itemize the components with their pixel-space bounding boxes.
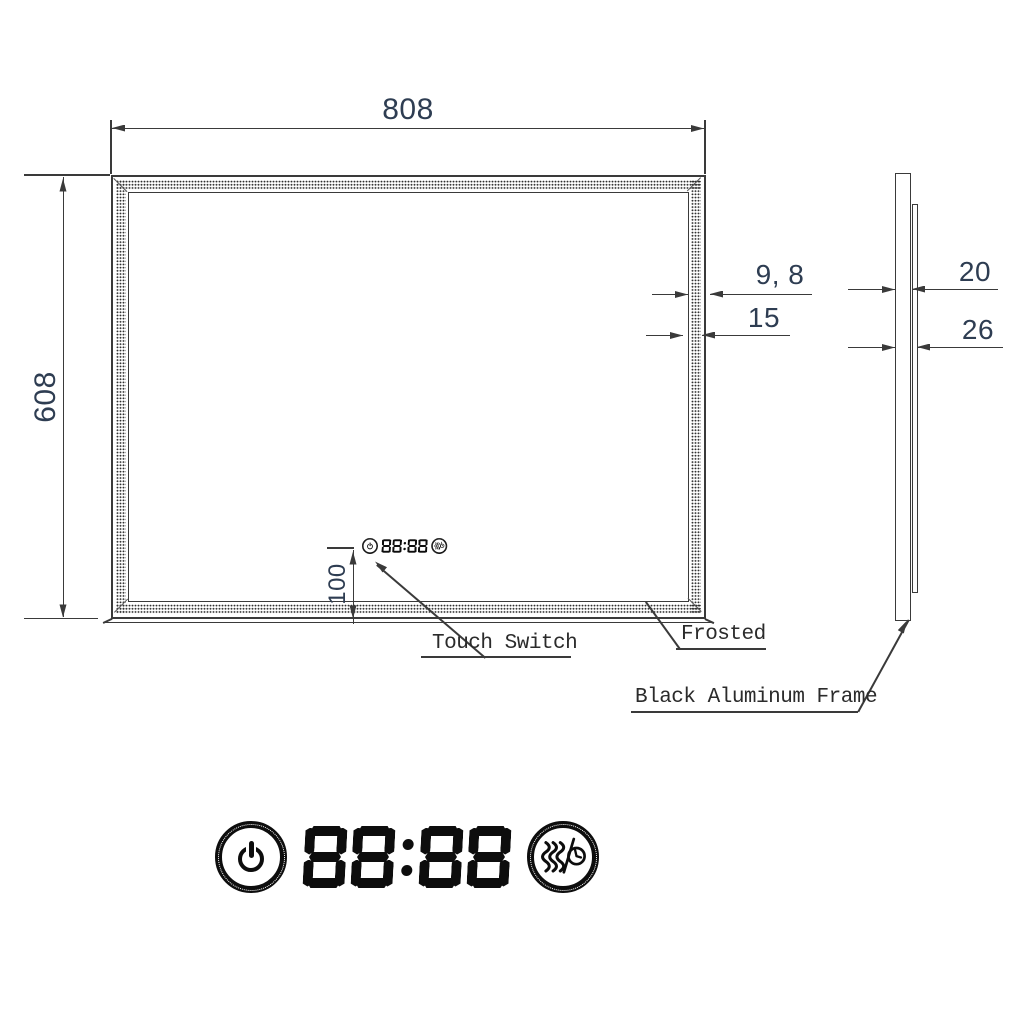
arrowhead	[691, 125, 704, 132]
frosted-led-band-right	[691, 180, 701, 614]
arrowhead	[60, 604, 67, 617]
dimension-width-value: 808	[358, 95, 458, 125]
arrowhead	[882, 344, 895, 351]
arrowhead	[710, 291, 723, 298]
led-clock-digits	[381, 539, 427, 553]
mirror-side-view	[895, 173, 911, 621]
touch-switch-display	[362, 538, 450, 556]
dimension-frost-offset-value: 15	[724, 304, 804, 332]
label-underline	[421, 656, 571, 658]
frosted-led-band-top	[116, 180, 701, 190]
dimension-switch-offset-value: 100	[326, 534, 350, 634]
defogger-timer-icon	[527, 821, 599, 893]
arrowhead	[112, 125, 125, 132]
extension-line	[24, 174, 110, 176]
label-underline	[676, 648, 766, 650]
frame-bottom-edge-line	[103, 622, 714, 624]
power-icon	[362, 538, 378, 554]
dimension-line-height	[63, 177, 65, 617]
arrowhead	[917, 344, 930, 351]
dimension-height-value: 608	[31, 347, 61, 447]
frosted-led-band-left	[116, 180, 126, 614]
dimension-line-width	[112, 128, 704, 130]
mirror-back-panel	[912, 204, 918, 593]
dimension-depth-value: 20	[935, 258, 1015, 286]
touch-switch-label: Touch Switch	[432, 633, 577, 654]
defogger-timer-icon	[431, 538, 447, 554]
extension-line	[24, 618, 98, 620]
extension-line	[704, 120, 706, 174]
dimension-line	[710, 294, 812, 296]
black-aluminum-frame-label: Black Aluminum Frame	[635, 687, 877, 708]
dimension-frost-band-value: 9, 8	[740, 261, 820, 289]
dimension-line	[702, 335, 790, 337]
frosted-led-band-bottom	[116, 604, 701, 614]
power-icon	[215, 821, 287, 893]
dimension-total-depth-value: 26	[938, 316, 1018, 344]
label-underline	[631, 711, 858, 713]
technical-drawing-canvas: 808 608 9, 8 15 20 26 100	[0, 0, 1024, 1024]
led-clock-digits	[302, 826, 511, 888]
frosted-label: Frosted	[681, 624, 766, 645]
arrowhead	[60, 178, 67, 191]
arrowhead	[882, 286, 895, 293]
control-panel-display	[215, 821, 599, 893]
